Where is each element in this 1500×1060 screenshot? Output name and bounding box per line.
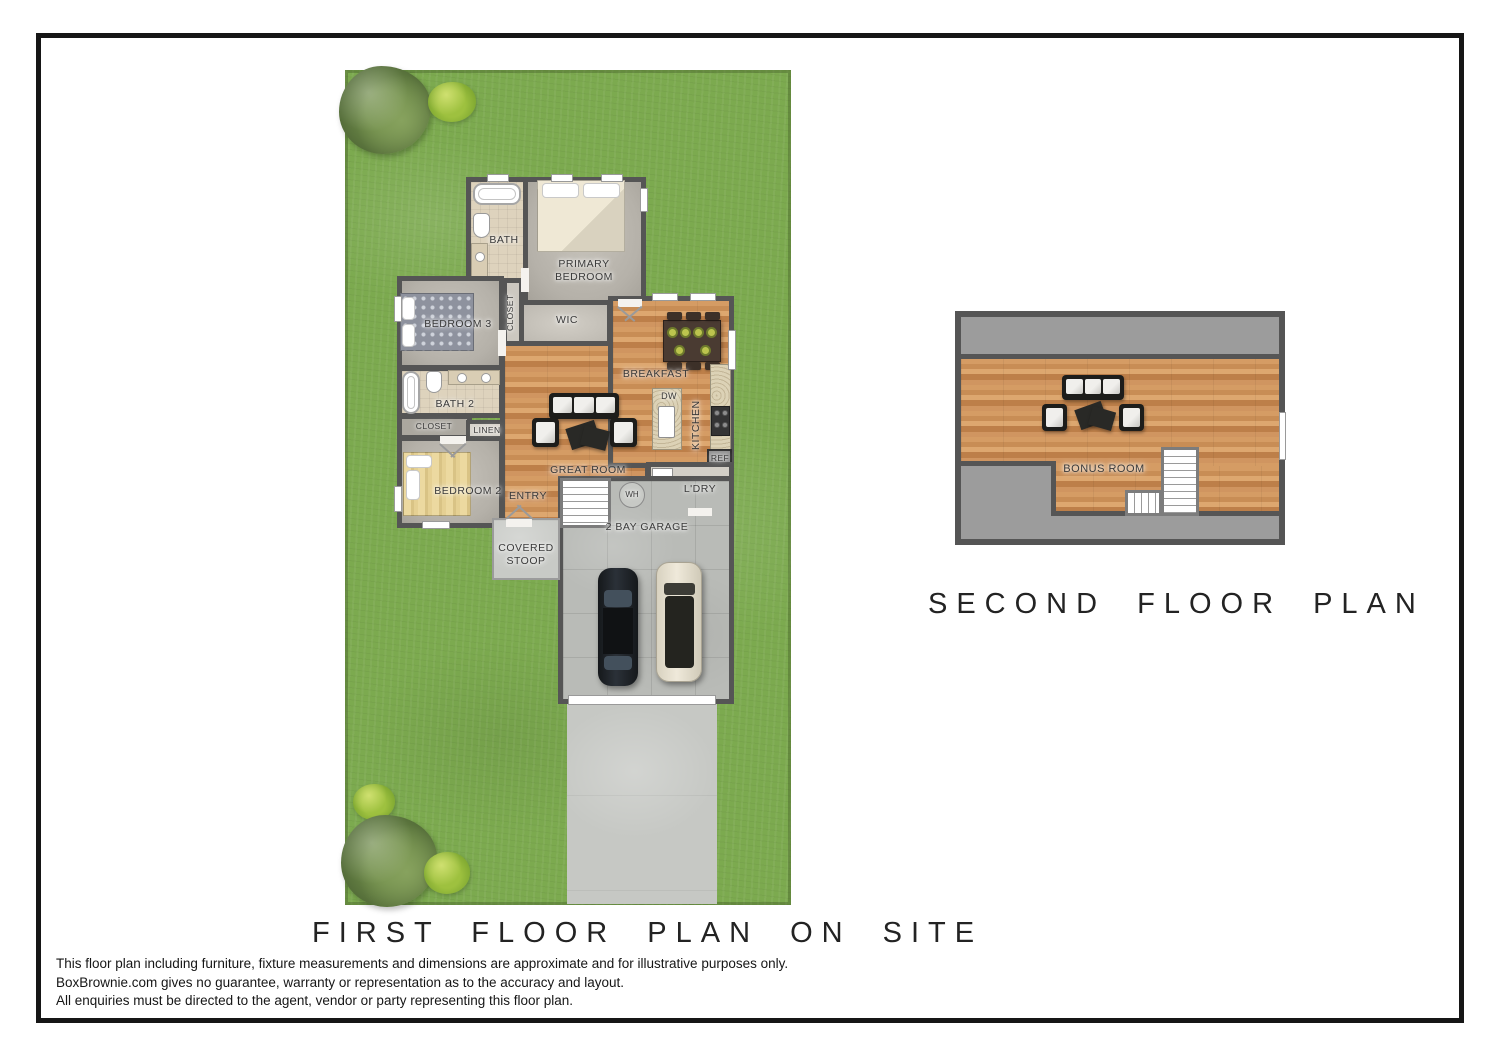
label-dw: DW — [656, 392, 682, 401]
primary-bed — [537, 180, 625, 252]
car-sedan — [598, 568, 638, 686]
front-door-gap — [506, 519, 532, 527]
window — [601, 174, 623, 182]
disclaimer-line-1: This floor plan including furniture, fix… — [56, 955, 788, 974]
second-floor-wall — [961, 354, 1279, 359]
kitchen-sink — [658, 406, 675, 438]
stairs-landing — [1125, 490, 1162, 516]
garage-door — [568, 695, 716, 705]
label-closet: CLOSET — [400, 422, 468, 431]
label-ldry: L'DRY — [672, 483, 728, 496]
breakfast-chair — [667, 312, 682, 320]
label-covered-stoop: COVERED STOOP — [494, 542, 558, 567]
great-room-armchair-left — [532, 418, 559, 447]
label-bedroom3: BEDROOM 3 — [403, 318, 513, 331]
first-floor-title: FIRST FLOOR PLAN ON SITE — [312, 917, 812, 950]
window — [551, 174, 573, 182]
car-suv — [656, 562, 702, 682]
stove — [711, 406, 730, 436]
window — [640, 188, 648, 212]
label-great-room: GREAT ROOM — [530, 464, 646, 477]
stairs-second-floor — [1161, 447, 1199, 516]
window — [394, 296, 402, 322]
label-bath: BATH — [482, 234, 526, 247]
driveway — [567, 700, 717, 904]
water-heater: WH — [619, 482, 645, 508]
label-bonus-room: BONUS ROOM — [1042, 463, 1166, 476]
great-room-sofa — [549, 393, 619, 419]
water-heater-label: WH — [625, 489, 638, 502]
door-gap — [440, 436, 466, 444]
bonus-room-sofa — [1062, 375, 1124, 400]
breakfast-chair — [686, 312, 701, 320]
label-wic: WIC — [537, 314, 597, 327]
bonus-room-armchair-left — [1042, 404, 1067, 431]
breakfast-table — [663, 320, 721, 362]
second-floor-title: SECOND FLOOR PLAN — [928, 588, 1312, 621]
bonus-room-armchair-right — [1119, 404, 1144, 431]
bedroom2-bed — [403, 452, 471, 516]
door-gap — [688, 508, 712, 516]
window — [652, 293, 678, 301]
label-linen: LINEN — [467, 426, 507, 435]
window — [487, 174, 509, 182]
breakfast-chair — [705, 312, 720, 320]
bathtub — [473, 183, 521, 205]
floor-plan-page: { "titles": { "first_floor": "FIRST FLOO… — [0, 0, 1500, 1060]
disclaimer-line-3: All enquiries must be directed to the ag… — [56, 992, 788, 1011]
bush-bottom — [424, 852, 470, 894]
window — [422, 521, 450, 529]
door-gap — [498, 330, 506, 356]
label-ref: REF — [707, 454, 733, 463]
label-entry: ENTRY — [498, 490, 558, 503]
label-closet-vertical: CLOSET — [506, 286, 520, 340]
label-primary-bedroom: PRIMARY BEDROOM — [542, 258, 626, 283]
window — [1279, 412, 1286, 460]
bush-top — [428, 82, 476, 122]
tree-large-top — [339, 66, 431, 154]
window — [394, 486, 402, 512]
disclaimer: This floor plan including furniture, fix… — [56, 955, 788, 1011]
disclaimer-line-2: BoxBrownie.com gives no guarantee, warra… — [56, 974, 788, 993]
window — [690, 293, 716, 301]
great-room-armchair-right — [610, 418, 637, 447]
door-gap — [618, 299, 642, 307]
label-kitchen: KITCHEN — [690, 385, 704, 465]
bath2-toilet — [426, 371, 442, 393]
tree-large-bottom — [341, 815, 437, 907]
label-garage: 2 BAY GARAGE — [568, 521, 726, 534]
door-gap — [521, 268, 529, 292]
sliding-door — [728, 330, 736, 370]
label-breakfast: BREAKFAST — [599, 368, 713, 381]
bath2-tub — [402, 371, 420, 414]
bath2-vanity — [448, 370, 500, 385]
label-bath2: BATH 2 — [420, 398, 490, 411]
